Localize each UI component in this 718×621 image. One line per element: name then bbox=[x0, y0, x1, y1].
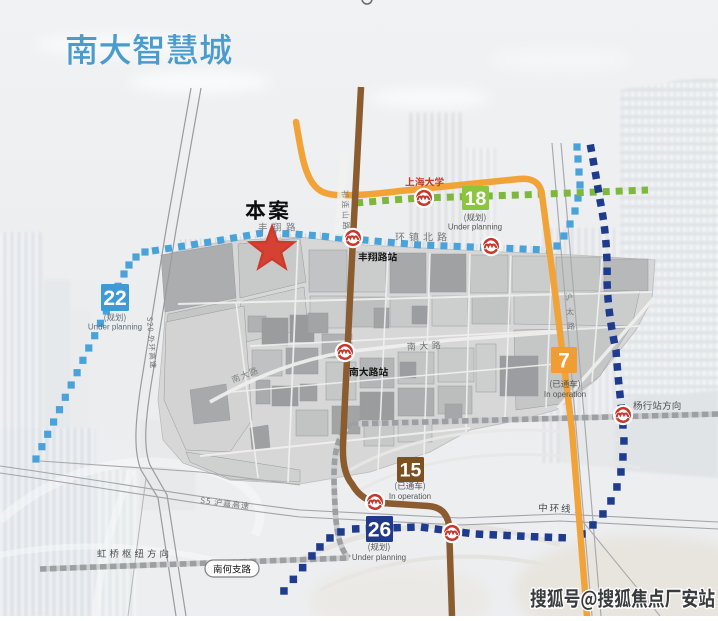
svg-text:In operation: In operation bbox=[544, 390, 586, 399]
svg-text:Under planning: Under planning bbox=[352, 553, 406, 562]
svg-text:Under planning: Under planning bbox=[88, 323, 142, 332]
svg-text:In operation: In operation bbox=[389, 492, 431, 501]
svg-text:22: 22 bbox=[103, 287, 126, 310]
svg-text:18: 18 bbox=[465, 188, 487, 210]
svg-text:7: 7 bbox=[558, 350, 570, 373]
svg-text:15: 15 bbox=[400, 460, 422, 482]
svg-text:26: 26 bbox=[368, 519, 391, 542]
svg-text:Under planning: Under planning bbox=[448, 223, 502, 232]
